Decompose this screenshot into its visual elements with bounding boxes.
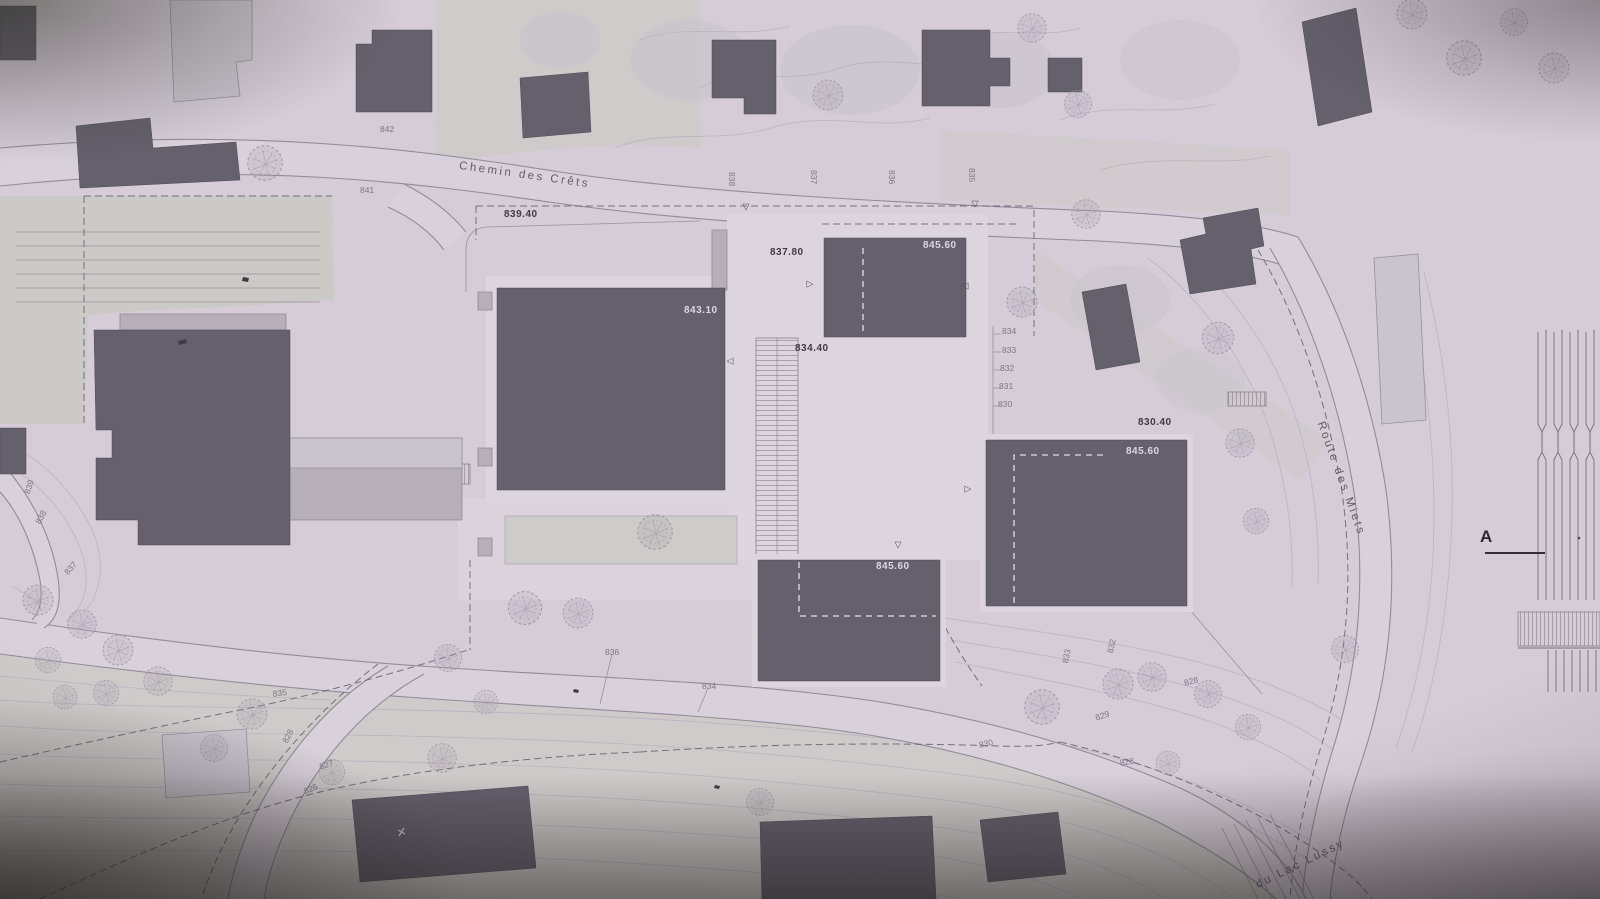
stairs-east — [1228, 392, 1266, 406]
building-upper — [824, 238, 966, 337]
building-pale-east — [1374, 254, 1426, 424]
building-school-west — [94, 330, 290, 545]
section-marker: A — [1480, 527, 1493, 547]
site-plan-photo: Chemin des CrêtsRoute des Mietsdu Lac Lu… — [0, 0, 1600, 899]
section-line — [1485, 552, 1545, 554]
site-plan-drawing — [0, 0, 1600, 899]
building-lower — [758, 560, 940, 681]
building-east — [986, 440, 1187, 606]
section-label: A — [1480, 527, 1493, 546]
building-center — [497, 288, 725, 490]
